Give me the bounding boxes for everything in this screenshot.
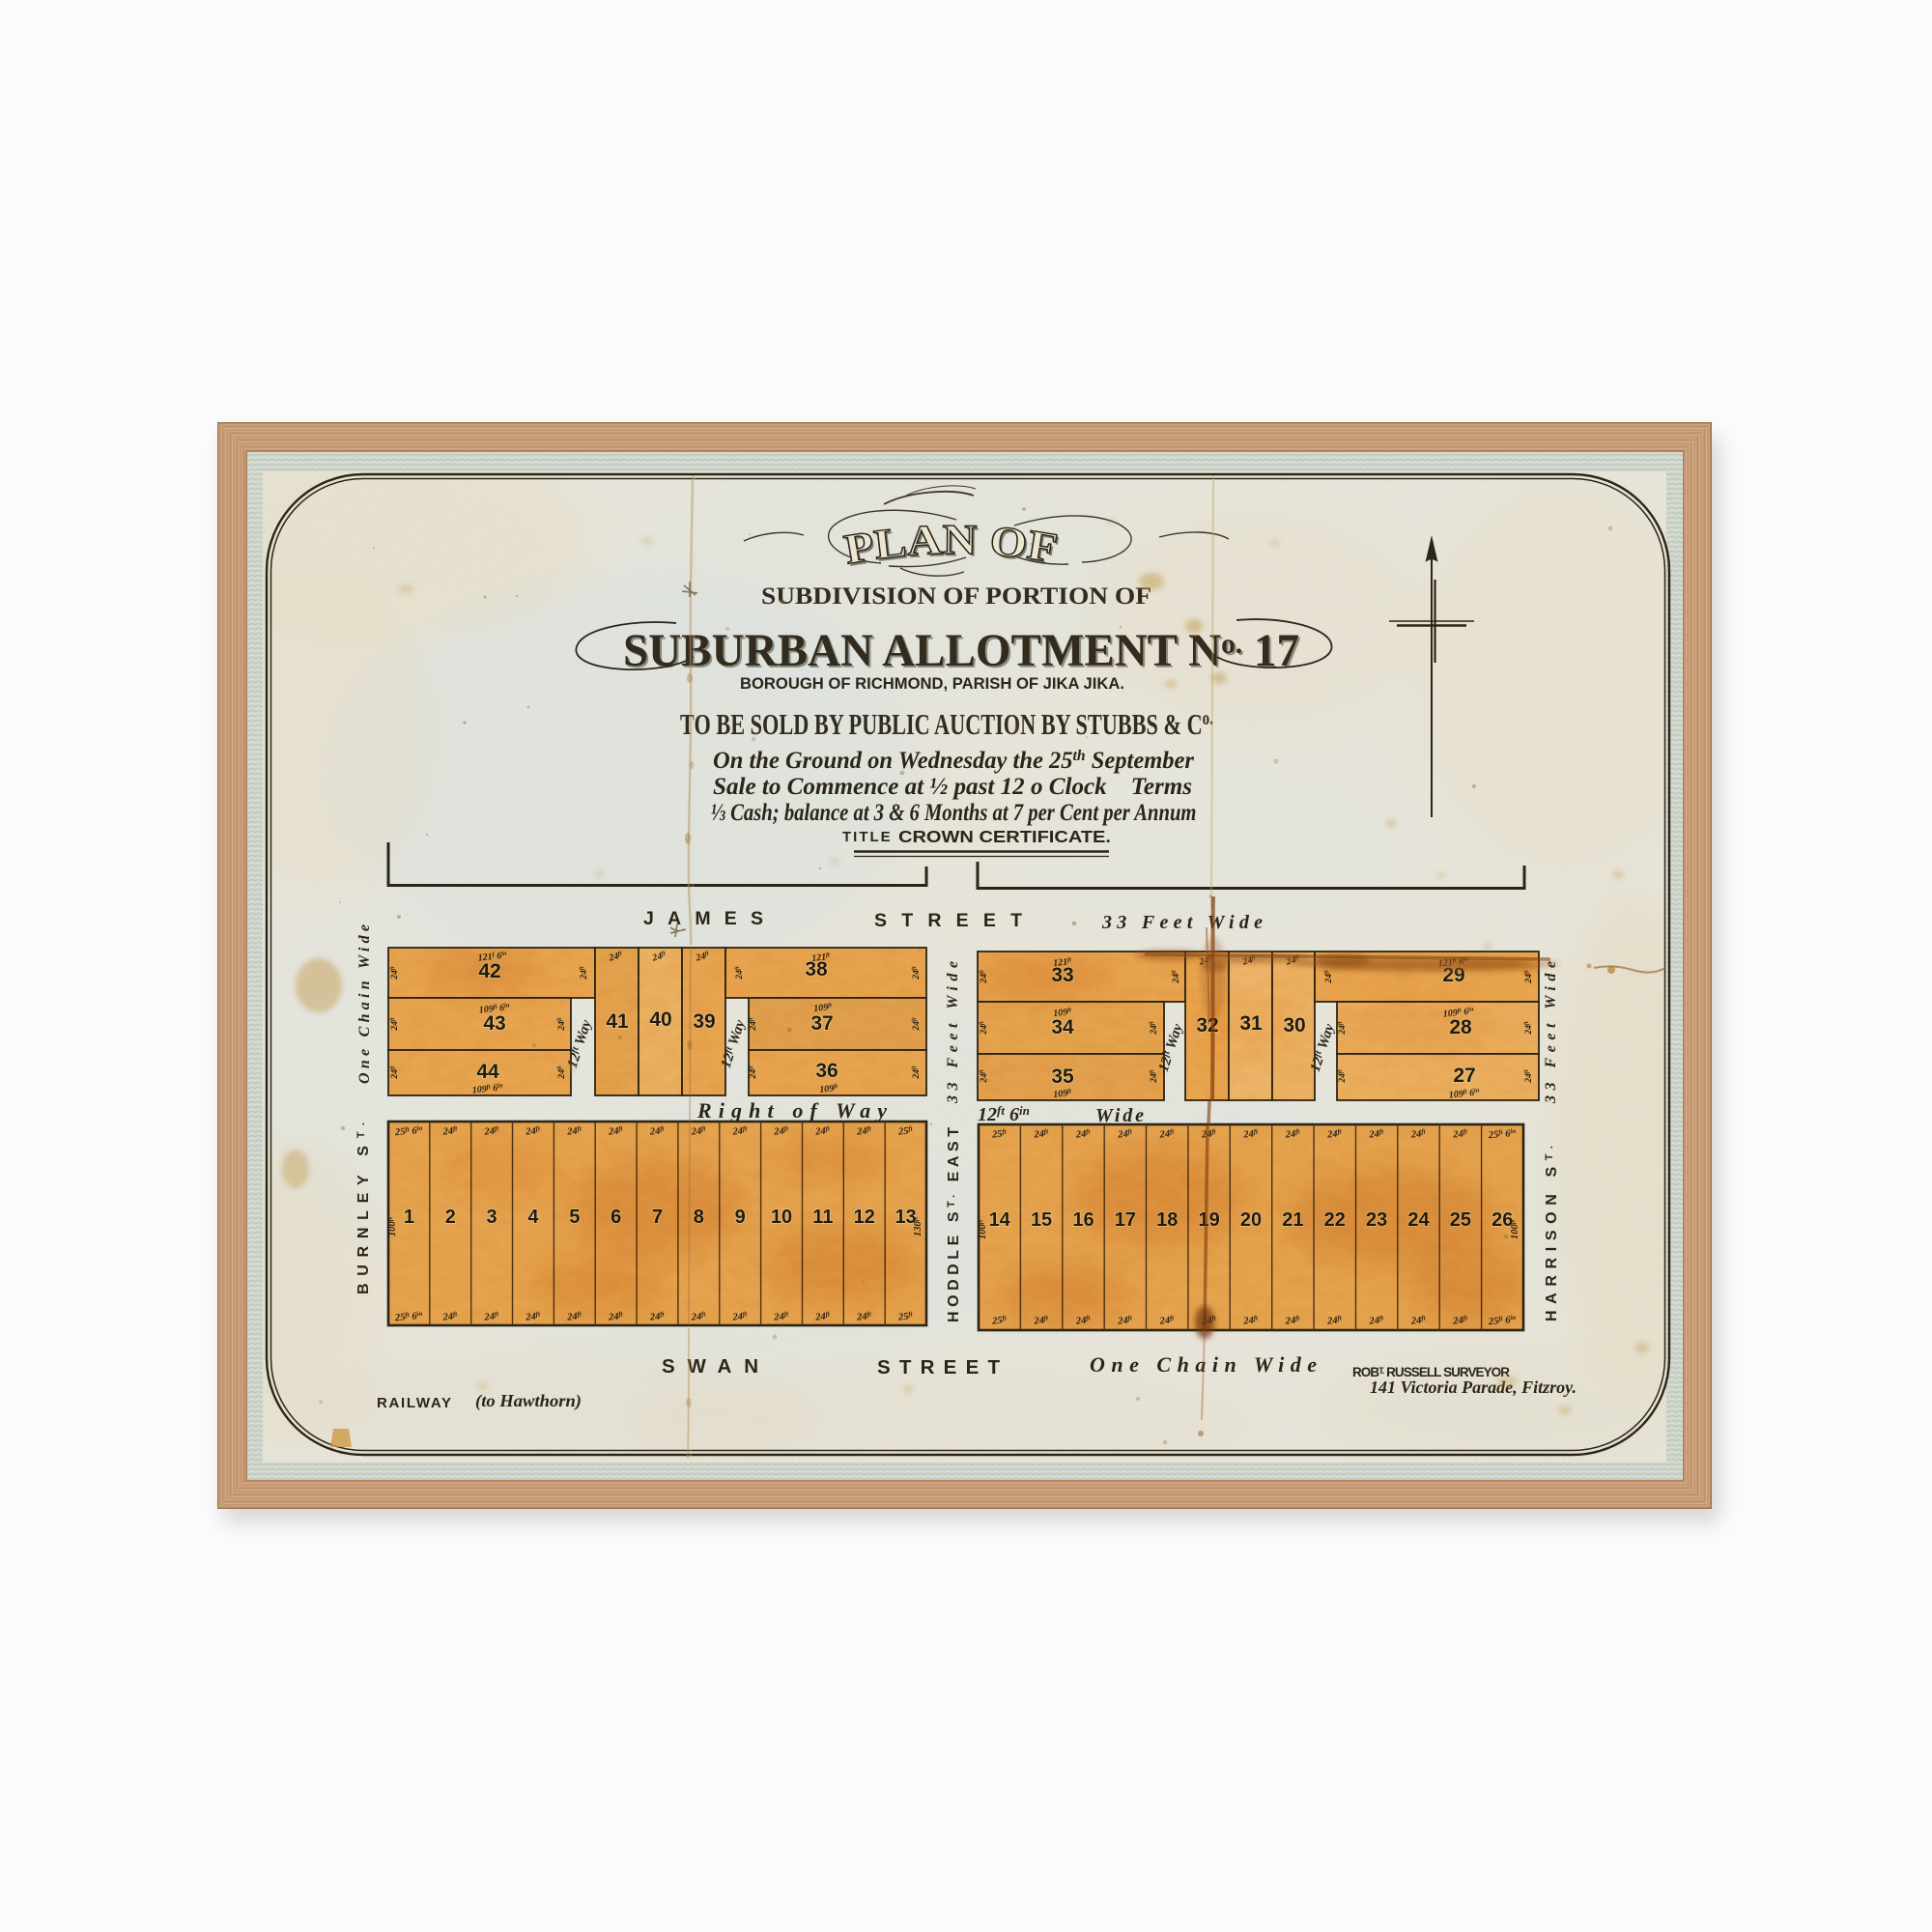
svg-text:33 Feet Wide: 33 Feet Wide: [1101, 912, 1263, 933]
svg-text:BOROUGH OF RICHMOND, PARISH OF: BOROUGH OF RICHMOND, PARISH OF JIKA JIKA…: [740, 674, 1124, 693]
svg-text:SUBDIVISION OF PORTION OF: SUBDIVISION OF PORTION OF: [761, 583, 1151, 610]
svg-text:⅓ Cash; balance at 3 & 6 Month: ⅓ Cash; balance at 3 & 6 Months at 7 per…: [711, 800, 1197, 826]
svg-text:TO BE SOLD BY PUBLIC AUCTION B: TO BE SOLD BY PUBLIC AUCTION BY STUBBS &…: [680, 706, 1213, 741]
svg-text:CROWN CERTIFICATE.: CROWN CERTIFICATE.: [898, 827, 1111, 846]
svg-text:(to Hawthorn): (to Hawthorn): [475, 1391, 582, 1411]
svg-text:On the Ground on Wednesday the: On the Ground on Wednesday the 25th Sept…: [713, 748, 1194, 774]
svg-text:SUBURBAN ALLOTMENT No. 17: SUBURBAN ALLOTMENT No. 17: [623, 625, 1299, 676]
svg-text:Wide: Wide: [1095, 1105, 1144, 1126]
svg-text:141 Victoria Parade, Fitzroy.: 141 Victoria Parade, Fitzroy.: [1370, 1378, 1577, 1397]
svg-text:Sale to Commence at ½ past 12: Sale to Commence at ½ past 12 o Clock Te…: [713, 774, 1192, 800]
svg-text:HARRISON ST.: HARRISON ST.: [1544, 1146, 1560, 1321]
svg-text:TITLE: TITLE: [842, 829, 893, 845]
